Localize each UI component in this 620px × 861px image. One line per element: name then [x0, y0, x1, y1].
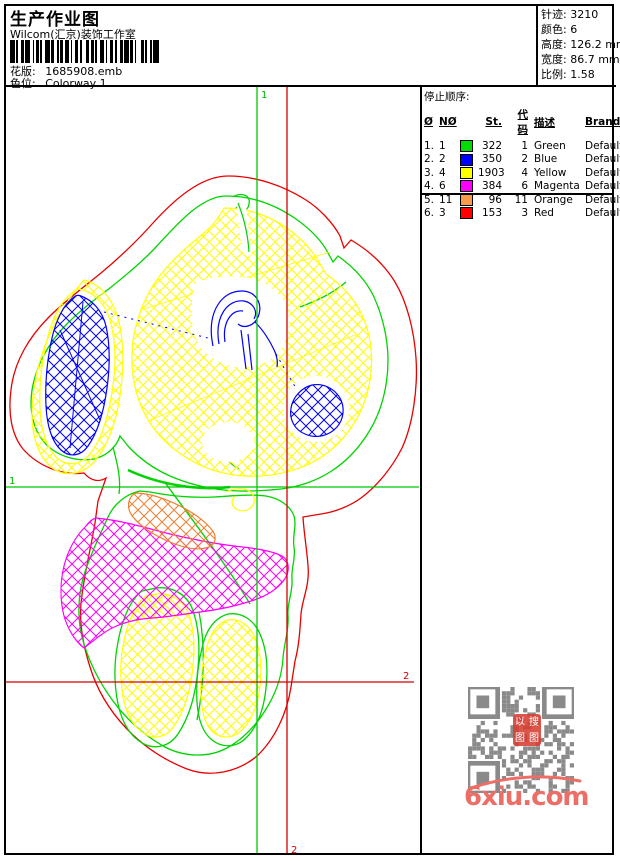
stop-sequence-title: 停止顺序:	[424, 89, 614, 104]
colorway-value: Colorway 1	[45, 77, 106, 90]
color-count: 6	[570, 23, 577, 36]
production-worksheet-page: 1 1 2 2 生产作业图 Wilcom(汇京)装饰工作室 花版: 168590…	[0, 0, 620, 861]
colorway-row: 色位: Colorway 1	[10, 75, 107, 91]
thread-color-swatch	[460, 167, 473, 179]
row-seq: 6.	[424, 207, 439, 219]
col-header-hash: Ø	[424, 116, 439, 130]
col-header-brand: Brand	[585, 116, 620, 130]
colors-row: 颜色: 6	[541, 21, 577, 37]
design-scale: 1.58	[570, 68, 595, 81]
design-width: 86.7 mm	[570, 53, 619, 66]
col-header-code: 代码	[508, 107, 534, 139]
design-height: 126.2 mm	[570, 38, 620, 51]
height-row: 高度: 126.2 mm	[541, 36, 620, 52]
row-seq: 1.	[424, 140, 439, 152]
watermark-site: 6xiu.com	[464, 782, 588, 812]
stop-sequence-table: 停止顺序: Ø NØ St. 代码 描述 Brand 元素 1.13221Gre…	[424, 89, 614, 219]
thread-color-swatch	[460, 180, 473, 192]
row-seq: 3.	[424, 167, 439, 179]
colorway-label: 色位:	[10, 77, 36, 90]
design-barcode	[10, 40, 160, 63]
thread-color-swatch	[460, 154, 473, 166]
row-seq: 4.	[424, 180, 439, 192]
scale-row: 比例: 1.58	[541, 66, 595, 82]
info-box-divider	[536, 4, 538, 87]
thread-color-swatch	[460, 194, 473, 206]
right-column-divider	[420, 87, 422, 855]
row-seq: 5.	[424, 194, 439, 206]
width-row: 宽度: 86.7 mm	[541, 51, 620, 67]
stitch-count: 3210	[570, 8, 598, 21]
col-header-description: 描述	[534, 115, 585, 132]
col-header-stitches: St.	[478, 116, 508, 130]
thread-color-swatch	[460, 207, 473, 219]
row-seq: 2.	[424, 153, 439, 165]
col-header-needle: NØ	[439, 116, 460, 130]
thread-color-swatch	[460, 140, 473, 152]
red-seal-stamp: 以搜 图图	[513, 714, 541, 746]
stitches-row: 针迹: 3210	[541, 6, 598, 22]
